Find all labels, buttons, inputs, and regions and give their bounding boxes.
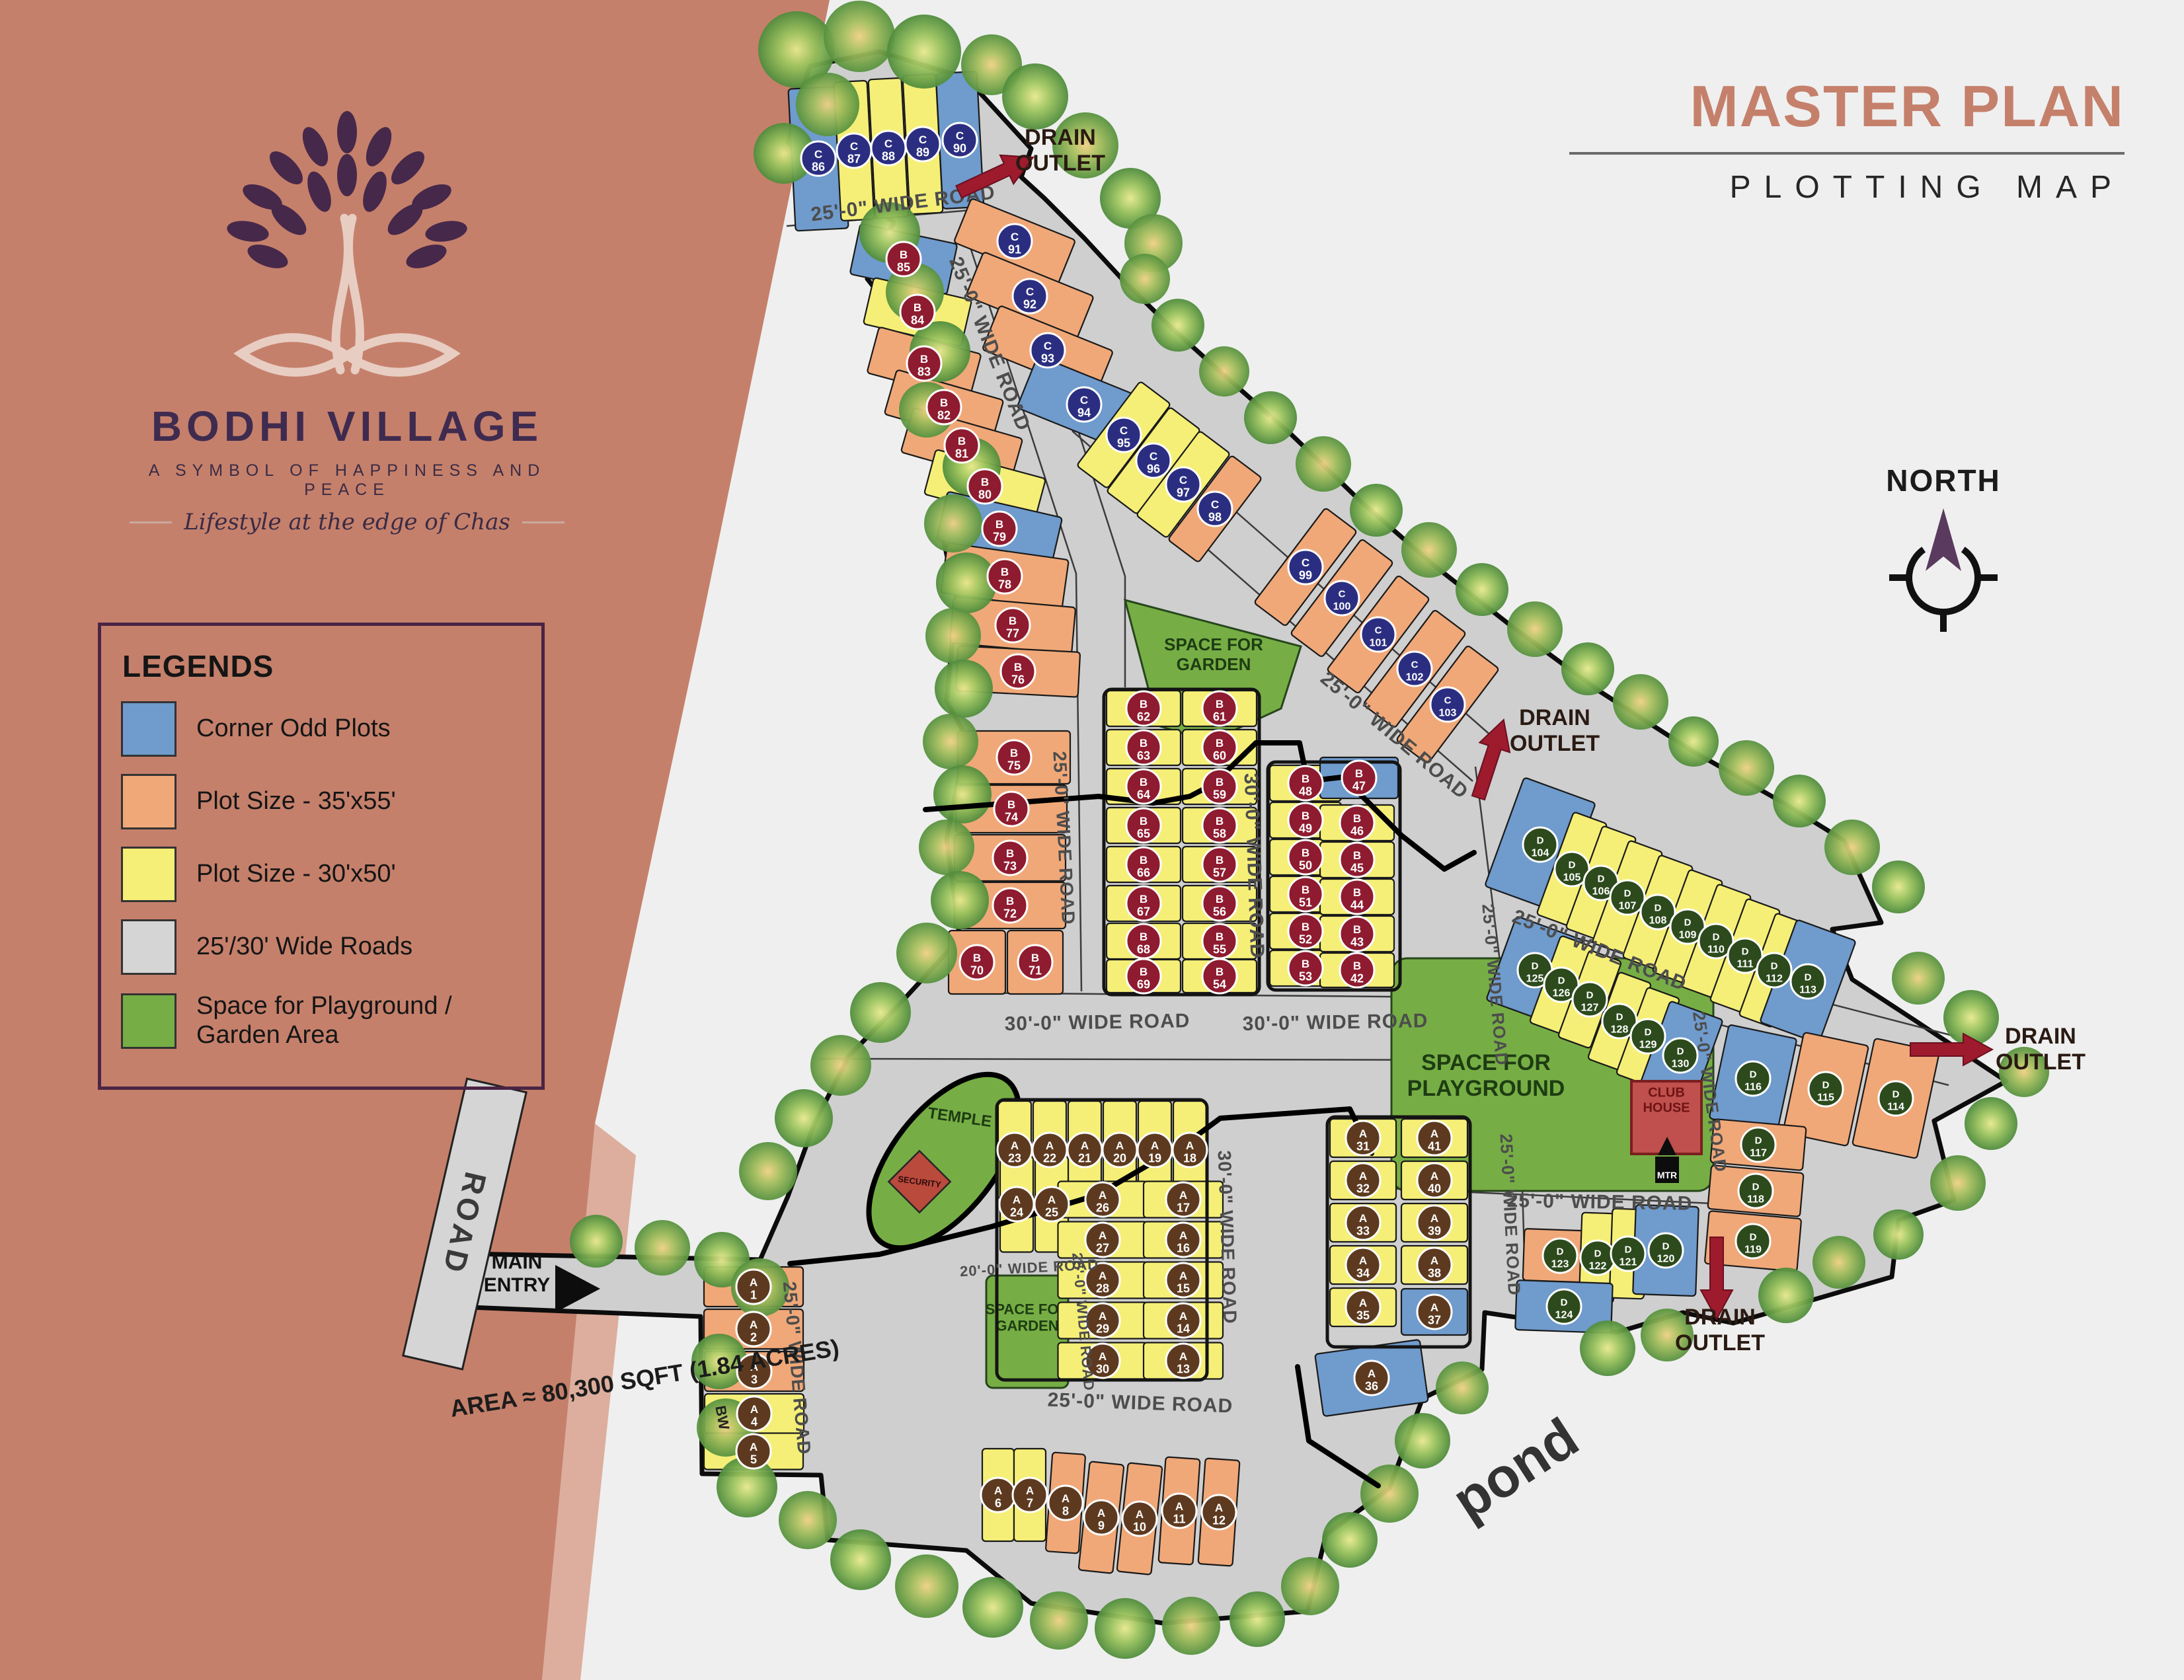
plot-badge-series: A — [1430, 1301, 1438, 1314]
tree — [850, 982, 911, 1043]
plot-badge-number: 79 — [993, 530, 1006, 543]
plot-badge-series: D — [1805, 972, 1812, 983]
plot-badge-series: C — [850, 140, 858, 153]
plot-badge-series: D — [1752, 1181, 1760, 1192]
plot-badge-C89: C89 — [906, 127, 940, 161]
plot-badge-series: B — [1216, 776, 1224, 788]
plot-badge-number: 80 — [978, 488, 992, 501]
legend-swatch-green — [121, 993, 176, 1049]
plot-badge-number: 77 — [1006, 627, 1019, 640]
plot-badge-series: B — [920, 353, 928, 365]
plot-badge-series: A — [1179, 1189, 1187, 1202]
plot-badge-series: D — [1586, 989, 1594, 1001]
tree — [1813, 1236, 1865, 1289]
plot-badge-D104: D104 — [1523, 827, 1557, 862]
plot-badge-A40: A40 — [1417, 1163, 1452, 1198]
plot-badge-B54: B54 — [1202, 959, 1237, 993]
plot-badge-number: 87 — [847, 152, 861, 165]
plot-badge-number: 74 — [1005, 810, 1018, 823]
plot-badge-series: D — [1684, 917, 1692, 928]
plot-badge-series: D — [1598, 873, 1605, 884]
plot-badge-number: 76 — [1011, 673, 1025, 686]
plot-badge-number: 12 — [1212, 1513, 1226, 1527]
plot-badge-series: A — [1099, 1310, 1107, 1322]
plot-badge-series: A — [750, 1441, 758, 1453]
plot-badge-number: 112 — [1766, 974, 1783, 985]
plot-badge-number: 64 — [1137, 788, 1150, 801]
plot-badge-series: C — [1339, 588, 1346, 599]
tree — [1456, 563, 1508, 616]
plot-badge-number: 49 — [1299, 821, 1312, 835]
plot-badge-series: D — [1558, 975, 1565, 986]
plot-badge-number: 17 — [1177, 1201, 1190, 1214]
road-label: 25'-0" WIDE ROAD — [1506, 1190, 1692, 1215]
tree — [1395, 1413, 1450, 1469]
plot-badge-B58: B58 — [1202, 808, 1237, 843]
plot-badge-number: 93 — [1041, 352, 1054, 365]
plot-badge-number: 72 — [1003, 907, 1017, 920]
plot-badge-number: 6 — [995, 1496, 1001, 1509]
plot-badge-B73: B73 — [993, 841, 1027, 875]
plot-badge-A6: A6 — [981, 1478, 1015, 1512]
plot-badge-number: 83 — [917, 365, 931, 378]
tree — [1030, 1591, 1088, 1650]
plot-badge-series: B — [1216, 966, 1224, 978]
plot-badge-number: 115 — [1817, 1092, 1834, 1104]
plot-badge-B71: B71 — [1018, 945, 1052, 979]
plot-badge-series: B — [1216, 698, 1224, 710]
plot-badge-B44: B44 — [1340, 880, 1374, 914]
plot-badge-B66: B66 — [1126, 847, 1161, 882]
tree — [1162, 1597, 1220, 1655]
tree — [1580, 1320, 1635, 1376]
legend-item-plot-30x50: Plot Size - 30'x50' — [121, 847, 526, 902]
plot-badge-A2: A2 — [736, 1312, 771, 1346]
drain-outlet-label: DRAINOUTLET — [1015, 125, 1105, 176]
plot-badge-A16: A16 — [1166, 1223, 1200, 1257]
green-area-label: SPACE FORPLAYGROUND — [1407, 1050, 1565, 1101]
plot-badge-B83: B83 — [907, 346, 941, 381]
plot-badge-series: D — [1645, 1026, 1652, 1038]
plot-badge-A31: A31 — [1346, 1121, 1380, 1155]
plot-badge-D117: D117 — [1741, 1127, 1775, 1162]
plot-badge-series: B — [1216, 737, 1224, 749]
plot-badge-series: A — [1099, 1189, 1107, 1202]
plot-badge-number: 109 — [1679, 930, 1697, 941]
plot-badge-number: 84 — [911, 313, 924, 326]
plot-badge-number: 102 — [1406, 672, 1424, 683]
plot-badge-series: A — [1179, 1270, 1187, 1282]
plot-badge-number: 117 — [1750, 1148, 1767, 1159]
plot-badge-series: C — [919, 134, 927, 146]
plot-badge-number: 9 — [1098, 1519, 1105, 1532]
plot-badge-number: 38 — [1428, 1266, 1441, 1279]
plot-badge-series: B — [958, 435, 966, 447]
plot-badge-C86: C86 — [801, 141, 836, 176]
tree — [779, 1491, 837, 1549]
brand-title: BODHI VILLAGE — [119, 402, 575, 451]
plot-badge-A32: A32 — [1346, 1163, 1380, 1198]
plot-badge-series: A — [1430, 1127, 1438, 1140]
plot-badge-B56: B56 — [1202, 886, 1237, 921]
plot-badge-series: B — [1001, 566, 1009, 578]
plot-badge-A25: A25 — [1034, 1187, 1069, 1221]
plot-badge-B75: B75 — [997, 740, 1031, 775]
legend-swatch-blue — [121, 701, 176, 757]
plot-badge-B70: B70 — [960, 945, 994, 979]
legend-item-plot-35x55: Plot Size - 35'x55' — [121, 774, 526, 829]
plot-badge-series: A — [1151, 1139, 1159, 1152]
tree — [1322, 1512, 1378, 1568]
plot-badge-number: 89 — [916, 145, 929, 159]
plot-badge-number: 2 — [750, 1330, 757, 1344]
plot-badge-D124: D124 — [1547, 1289, 1581, 1324]
plot-badge-D122: D122 — [1580, 1241, 1615, 1275]
plot-badge-number: 20 — [1113, 1151, 1126, 1165]
plot-badge-D114: D114 — [1879, 1081, 1913, 1116]
plot-badge-number: 61 — [1213, 710, 1226, 723]
plot-badge-B48: B48 — [1288, 766, 1323, 800]
plot-badge-number: 44 — [1350, 898, 1364, 911]
plot-badge-B65: B65 — [1126, 808, 1161, 843]
plot-badge-series: D — [1750, 1069, 1757, 1080]
tree — [1199, 346, 1249, 397]
green-area-label: SPACE FORGARDEN — [1164, 634, 1263, 674]
plot-badge-number: 3 — [751, 1373, 758, 1386]
plot-badge-series: B — [1353, 923, 1361, 936]
plot-badge-A33: A33 — [1346, 1205, 1380, 1240]
plot-badge-series: C — [1444, 695, 1452, 706]
plot-badge-series: B — [1010, 747, 1018, 759]
left-road-strip: ROAD — [403, 1079, 526, 1369]
plot-badge-C87: C87 — [837, 134, 871, 168]
plot-badge-number: 11 — [1173, 1512, 1185, 1525]
plot-badge-number: 111 — [1737, 959, 1754, 970]
plot-badge-number: 78 — [998, 578, 1011, 591]
plot-badge-series: A — [1215, 1502, 1223, 1514]
plot-badge-number: 18 — [1183, 1151, 1196, 1165]
plot-badge-series: B — [1140, 776, 1148, 788]
plot-badge-number: 28 — [1096, 1281, 1109, 1295]
plot-badge-series: B — [1140, 966, 1148, 978]
tree — [1873, 1209, 1924, 1260]
legend-label: Plot Size - 30'x50' — [196, 860, 396, 889]
plot-badge-number: 106 — [1592, 886, 1610, 897]
drain-outlet-label: DRAINOUTLET — [1510, 705, 1600, 756]
plot-badge-number: 126 — [1553, 988, 1571, 999]
plot-badge-number: 50 — [1299, 859, 1312, 872]
plot-badge-series: A — [1175, 1500, 1183, 1513]
plot-badge-series: A — [1026, 1484, 1034, 1497]
plot-badge-B67: B67 — [1126, 886, 1161, 921]
plot-badge-series: A — [1136, 1508, 1144, 1521]
plot-badge-series: B — [1140, 893, 1148, 905]
tree — [830, 1529, 891, 1590]
plot-badge-D121: D121 — [1611, 1237, 1645, 1271]
plot-badge-number: 47 — [1352, 779, 1366, 792]
plot-badge-series: B — [973, 952, 981, 964]
plot-badge-series: A — [1099, 1350, 1107, 1363]
plot-badge-B77: B77 — [995, 608, 1030, 642]
plot-badge-series: D — [1677, 1046, 1684, 1057]
plot-badge-C93: C93 — [1031, 333, 1065, 367]
plot-badge-series: A — [1046, 1139, 1054, 1152]
tree — [1244, 391, 1297, 444]
plot-badge-D116: D116 — [1736, 1061, 1770, 1096]
plot-badge-number: 27 — [1096, 1241, 1109, 1254]
plot-badge-series: B — [1353, 849, 1361, 862]
plot-badge-number: 21 — [1078, 1151, 1091, 1165]
plot-badge-number: 121 — [1619, 1257, 1637, 1268]
plot-badge-B81: B81 — [945, 428, 979, 463]
plot-badge-series: D — [1616, 1011, 1623, 1022]
plot-badge-number: 75 — [1007, 759, 1021, 772]
plot-badge-series: D — [1561, 1297, 1568, 1308]
plot-badge-series: D — [1771, 960, 1778, 972]
plot-badge-number: 14 — [1177, 1322, 1190, 1335]
plot-badge-B68: B68 — [1126, 924, 1161, 958]
plot-badge-C92: C92 — [1013, 279, 1047, 313]
tree — [887, 15, 961, 89]
tree — [1824, 820, 1880, 875]
plot-badge-series: A — [1430, 1170, 1438, 1182]
plot-badge-number: 105 — [1563, 872, 1581, 884]
plot-badge-series: B — [1014, 661, 1022, 673]
plot-badge-series: B — [1302, 847, 1309, 859]
plot-badge-B42: B42 — [1340, 953, 1374, 987]
plot-badge-B79: B79 — [982, 512, 1017, 546]
plot-badge-number: 54 — [1213, 977, 1226, 991]
plot-badge-series: C — [1302, 556, 1309, 569]
plot-badge-number: 118 — [1747, 1194, 1764, 1205]
plot-badge-number: 66 — [1137, 866, 1150, 879]
tree — [1436, 1361, 1489, 1414]
tagline-dash-left — [130, 521, 172, 523]
plot-badge-D112: D112 — [1757, 953, 1791, 987]
tree — [1401, 522, 1457, 578]
plot-badge-series: B — [1007, 798, 1015, 811]
plot-badge-number: 24 — [1010, 1205, 1023, 1219]
plot-badge-number: 34 — [1356, 1266, 1370, 1279]
legend-swatch-orange — [121, 774, 176, 829]
plot-badge-number: 19 — [1148, 1151, 1161, 1165]
plot-badge-A17: A17 — [1166, 1182, 1200, 1217]
plot-badge-C90: C90 — [943, 123, 977, 157]
plot-badge-number: 68 — [1137, 942, 1150, 956]
plot-badge-number: 113 — [1799, 985, 1816, 996]
plot-badge-B50: B50 — [1288, 840, 1323, 874]
plot-badge-number: 33 — [1356, 1224, 1370, 1237]
plot-badge-number: 91 — [1008, 243, 1021, 256]
tree — [1668, 716, 1719, 767]
drain-outlet-label: DRAINOUTLET — [1675, 1305, 1765, 1355]
plot-badge-A8: A8 — [1048, 1486, 1083, 1520]
plot-badge-series: C — [1011, 231, 1019, 243]
plot-badge-series: A — [1099, 1270, 1107, 1282]
plot-badge-number: 58 — [1213, 827, 1226, 840]
plot-badge-B64: B64 — [1126, 769, 1161, 804]
plot-badge-number: 16 — [1177, 1241, 1190, 1254]
plot-badge-series: B — [1302, 921, 1309, 933]
plot-badge-number: 127 — [1581, 1003, 1599, 1014]
plot-badge-A19: A19 — [1138, 1133, 1172, 1167]
plot-badge-number: 53 — [1299, 970, 1312, 983]
plot-badge-B46: B46 — [1340, 806, 1374, 840]
plot-badge-C96: C96 — [1136, 443, 1171, 478]
plot-badge-series: A — [994, 1484, 1002, 1497]
plot-badge-A37: A37 — [1417, 1295, 1452, 1329]
plot-badge-B45: B45 — [1340, 843, 1374, 877]
plot-badge-series: B — [1302, 810, 1309, 822]
plot-badge-A36: A36 — [1354, 1361, 1389, 1395]
plot-badge-D120: D120 — [1649, 1233, 1683, 1268]
plot-badge-A23: A23 — [997, 1133, 1032, 1167]
plot-badge-number: 52 — [1299, 933, 1312, 946]
tree — [1943, 990, 1999, 1046]
legend-panel: LEGENDS Corner Odd Plots Plot Size - 35'… — [98, 623, 545, 1090]
plot-badge-A21: A21 — [1068, 1133, 1102, 1167]
tree — [1296, 436, 1351, 492]
plot-badge-C95: C95 — [1107, 418, 1141, 452]
plot-badge-series: A — [1097, 1507, 1105, 1519]
plot-badge-C101: C101 — [1361, 617, 1395, 652]
tree — [931, 871, 989, 929]
drain-outlet-label: DRAINOUTLET — [1996, 1024, 2086, 1075]
plot-badge-series: A — [750, 1403, 758, 1416]
plot-badge-A22: A22 — [1033, 1133, 1067, 1167]
plot-badge-number: 39 — [1428, 1224, 1441, 1237]
plot-badge-D115: D115 — [1809, 1072, 1843, 1106]
plot-badge-number: 15 — [1177, 1281, 1190, 1295]
plot-badge-series: C — [884, 137, 892, 150]
plot-badge-C100: C100 — [1325, 581, 1359, 615]
plot-badge-number: 116 — [1744, 1082, 1762, 1093]
plot-badge-B76: B76 — [1001, 654, 1035, 689]
brand-subtitle: A SYMBOL OF HAPPINESS AND PEACE — [119, 461, 575, 500]
plot-badge-C91: C91 — [997, 224, 1032, 258]
plot-badge-D113: D113 — [1791, 964, 1825, 999]
tree — [1095, 1598, 1155, 1659]
plot-badge-B85: B85 — [886, 242, 921, 276]
plot-badge-series: D — [1594, 1248, 1602, 1259]
plot-badge-series: B — [1216, 815, 1224, 827]
plot-badge-A34: A34 — [1346, 1248, 1380, 1282]
plot-badge-number: 70 — [970, 964, 984, 977]
plot-badge-number: 8 — [1062, 1504, 1069, 1517]
north-label: NORTH — [1857, 463, 2029, 498]
plot-badge-series: B — [1140, 931, 1148, 943]
plot-badge-number: 95 — [1117, 436, 1130, 449]
plot-badge-number: 60 — [1213, 749, 1226, 762]
plot-badge-number: 40 — [1428, 1182, 1441, 1195]
plot-badge-series: D — [1569, 859, 1576, 870]
tree — [796, 73, 859, 136]
plot-badge-D119: D119 — [1736, 1224, 1770, 1258]
plot-badge-series: B — [1140, 815, 1148, 827]
plot-badge-number: 51 — [1299, 896, 1312, 909]
page-title: MASTER PLAN — [1569, 73, 2125, 140]
bodhi-village-logo — [119, 79, 575, 390]
plot-badge-series: A — [1048, 1194, 1056, 1206]
plot-badge-B51: B51 — [1288, 877, 1323, 911]
plot-badge-B47: B47 — [1342, 761, 1376, 795]
plot-badge-series: D — [1750, 1231, 1757, 1242]
tree — [895, 1554, 958, 1618]
plot-badge-series: C — [1375, 625, 1382, 636]
plot-badge-series: B — [1216, 931, 1224, 943]
plot-badge-number: 55 — [1213, 942, 1226, 956]
plot-badge-series: C — [1211, 498, 1219, 511]
tree — [1360, 1465, 1419, 1523]
plot-badge-series: B — [1353, 812, 1361, 825]
master-plan-poster: SPACE FORGARDENSPACE FORPLAYGROUNDSPACE … — [0, 0, 2184, 1680]
plot-badge-number: 32 — [1356, 1182, 1370, 1195]
tree — [1965, 1097, 2017, 1150]
plot-badge-series: C — [1150, 450, 1157, 463]
plot-badge-series: B — [1355, 767, 1363, 780]
plot-badge-C97: C97 — [1166, 467, 1200, 502]
plot-badge-C102: C102 — [1397, 652, 1432, 686]
legend-label: 25'/30' Wide Roads — [196, 933, 412, 962]
plot-badge-number: 94 — [1077, 406, 1091, 419]
plot-badge-A13: A13 — [1166, 1344, 1200, 1378]
plot-badge-number: 90 — [953, 141, 966, 155]
plot-badge-number: 48 — [1299, 784, 1312, 798]
plot-badge-series: B — [1353, 886, 1361, 899]
tree — [1507, 601, 1563, 657]
plot-badge-B60: B60 — [1202, 730, 1237, 765]
tree — [1719, 740, 1774, 796]
plot-badge-C103: C103 — [1430, 687, 1465, 722]
plot-badge-number: 42 — [1350, 972, 1364, 985]
plot-badge-number: 124 — [1555, 1310, 1573, 1321]
plot-badge-D118: D118 — [1738, 1174, 1773, 1208]
plot-badge-C99: C99 — [1288, 550, 1323, 584]
legend-item-playground-garden: Space for Playground / Garden Area — [121, 992, 526, 1050]
plot-badge-number: 36 — [1365, 1379, 1378, 1393]
tree — [1930, 1155, 1986, 1211]
brand-tagline-text: Lifestyle at the edge of Chas — [184, 509, 510, 535]
plot-badge-series: B — [1353, 960, 1361, 972]
plot-badge-series: B — [1216, 854, 1224, 866]
plot-badge-A14: A14 — [1166, 1303, 1200, 1338]
plot-badge-series: A — [1179, 1310, 1187, 1322]
plot-badge-number: 73 — [1003, 859, 1017, 872]
plot-badge-series: B — [995, 518, 1003, 531]
tree — [824, 1, 895, 72]
plot-badge-series: B — [940, 397, 948, 409]
plot-badge-number: 43 — [1350, 935, 1364, 948]
plot-badge-number: 63 — [1137, 749, 1150, 762]
plot-badge-number: 25 — [1045, 1205, 1058, 1219]
plot-badge-number: 22 — [1043, 1151, 1056, 1165]
plot-badge-A15: A15 — [1166, 1263, 1200, 1297]
plot-badge-series: A — [750, 1318, 758, 1331]
tree — [896, 923, 957, 983]
tree — [1151, 299, 1204, 352]
plot-badge-B82: B82 — [927, 390, 961, 424]
plot-badge-series: C — [1026, 286, 1034, 298]
plot-badge-series: A — [1359, 1127, 1367, 1140]
plot-badge-number: 98 — [1208, 510, 1222, 523]
plot-badge-series: D — [1713, 931, 1720, 942]
tree — [925, 608, 981, 664]
compass-north-arrow — [1926, 508, 1961, 571]
plot-badge-number: 13 — [1177, 1362, 1190, 1375]
plot-badge-A12: A12 — [1202, 1495, 1236, 1529]
plot-badge-A27: A27 — [1085, 1223, 1120, 1257]
plot-badge-number: 92 — [1023, 297, 1036, 311]
